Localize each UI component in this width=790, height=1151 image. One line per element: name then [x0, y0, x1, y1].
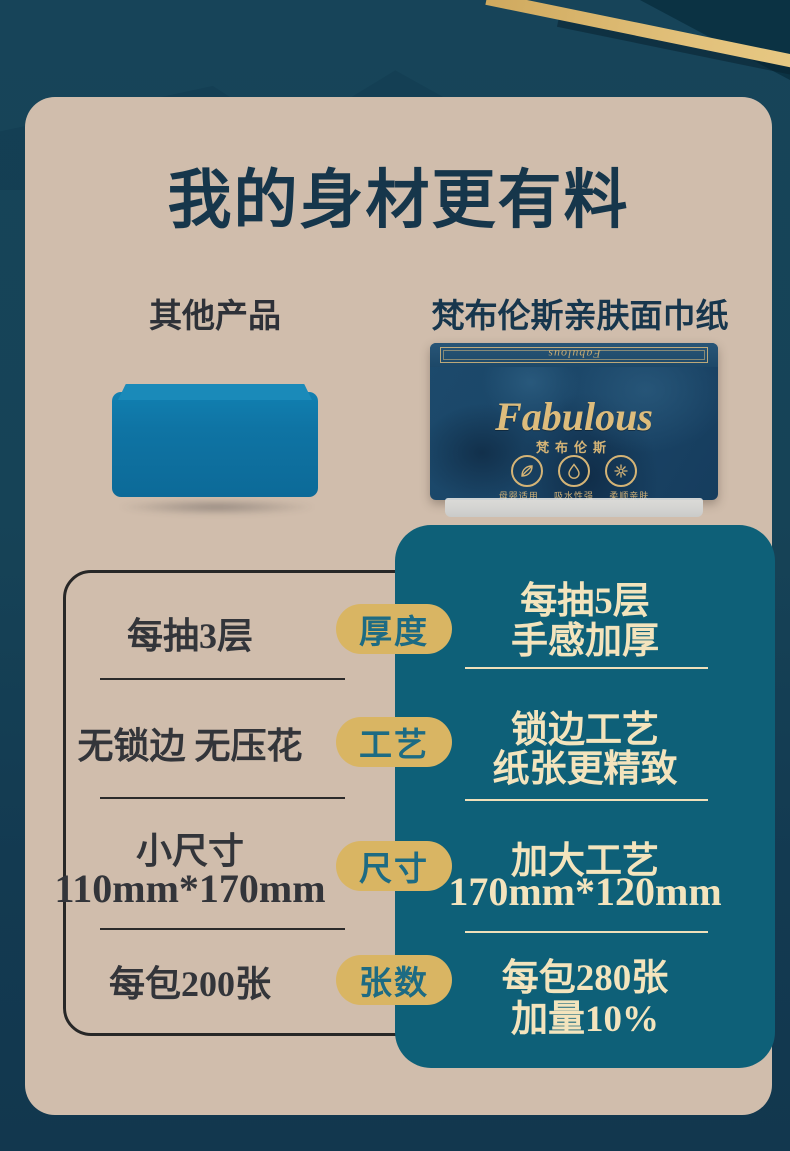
other-product-shadow: [117, 499, 317, 515]
fab-spec-size-2: 170mm*120mm: [395, 868, 775, 915]
category-pill-size: 尺寸: [336, 841, 452, 891]
page-background: 我的身材更有料 其他产品 梵布伦斯亲肤面巾纸 Fabulous Fabulous…: [0, 0, 790, 1151]
feature-icons-row: [430, 455, 718, 487]
leaf-icon: [511, 455, 543, 487]
row-divider: [100, 797, 345, 799]
category-pill-craft: 工艺: [336, 717, 452, 767]
column-header-fabulous: 梵布伦斯亲肤面巾纸: [410, 289, 750, 337]
other-spec-count: 每包200张: [25, 955, 355, 1007]
row-divider: [100, 928, 345, 930]
other-product-image: [112, 392, 318, 497]
flower-icon: [605, 455, 637, 487]
row-divider: [465, 667, 708, 669]
other-spec-thickness: 每抽3层: [25, 607, 355, 659]
fab-spec-craft-2: 纸张更精致: [395, 738, 775, 792]
lid-brand-text: Fabulous: [430, 346, 718, 361]
fab-spec-thickness-2: 手感加厚: [395, 610, 775, 664]
column-header-other: 其他产品: [65, 289, 365, 337]
row-divider: [465, 799, 708, 801]
category-pill-thickness: 厚度: [336, 604, 452, 654]
page-title: 我的身材更有料: [25, 149, 772, 241]
other-spec-size-value: 110mm*170mm: [25, 865, 355, 912]
brand-logo-text: Fabulous: [430, 393, 718, 440]
brand-chinese-text: 梵布伦斯: [430, 437, 718, 456]
fabulous-package-image: Fabulous Fabulous 梵布伦斯 母婴适用 吸水性强 柔顺亲肤: [430, 343, 718, 500]
package-film-base: [445, 498, 703, 517]
row-divider: [100, 678, 345, 680]
row-divider: [465, 931, 708, 933]
fab-spec-count-2: 加量10%: [395, 988, 775, 1042]
droplet-icon: [558, 455, 590, 487]
content-card: 我的身材更有料 其他产品 梵布伦斯亲肤面巾纸 Fabulous Fabulous…: [25, 97, 772, 1115]
category-pill-count: 张数: [336, 955, 452, 1005]
package-lid: Fabulous: [430, 343, 718, 367]
other-spec-craft: 无锁边 无压花: [25, 717, 355, 769]
